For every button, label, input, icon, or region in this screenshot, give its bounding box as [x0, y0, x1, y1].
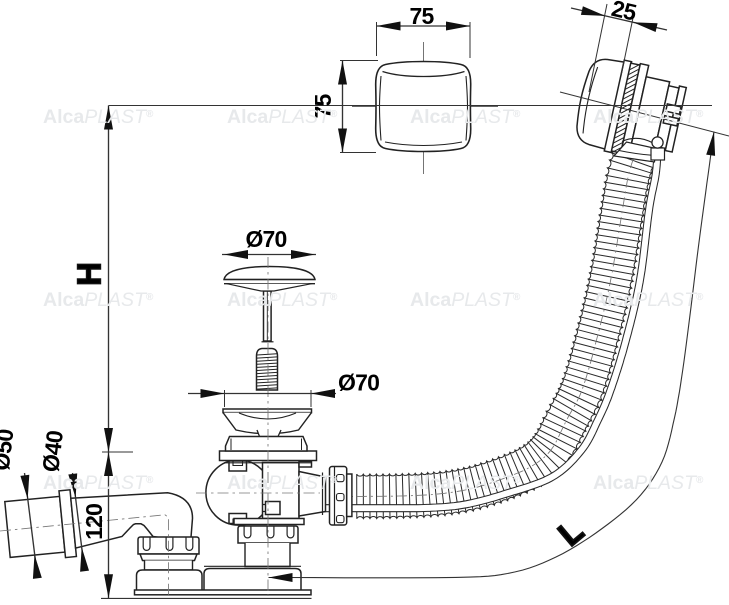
- svg-text:Ø70: Ø70: [245, 226, 286, 252]
- svg-text:AlcaPLAST®: AlcaPLAST®: [43, 472, 154, 494]
- svg-text:AlcaPLAST®: AlcaPLAST®: [43, 106, 154, 128]
- svg-text:Ø40: Ø40: [37, 430, 68, 474]
- svg-text:AlcaPLAST®: AlcaPLAST®: [227, 106, 338, 128]
- svg-text:AlcaPLAST®: AlcaPLAST®: [593, 106, 704, 128]
- svg-text:120: 120: [81, 504, 107, 540]
- svg-text:AlcaPLAST®: AlcaPLAST®: [43, 289, 154, 311]
- svg-text:AlcaPLAST®: AlcaPLAST®: [227, 472, 338, 494]
- svg-text:AlcaPLAST®: AlcaPLAST®: [410, 289, 521, 311]
- svg-text:H: H: [71, 262, 108, 286]
- svg-text:Ø70: Ø70: [338, 370, 379, 396]
- svg-text:AlcaPLAST®: AlcaPLAST®: [410, 472, 521, 494]
- svg-text:AlcaPLAST®: AlcaPLAST®: [593, 472, 704, 494]
- svg-text:75: 75: [410, 3, 435, 29]
- svg-text:AlcaPLAST®: AlcaPLAST®: [227, 289, 338, 311]
- svg-text:AlcaPLAST®: AlcaPLAST®: [593, 289, 704, 311]
- svg-text:AlcaPLAST®: AlcaPLAST®: [410, 106, 521, 128]
